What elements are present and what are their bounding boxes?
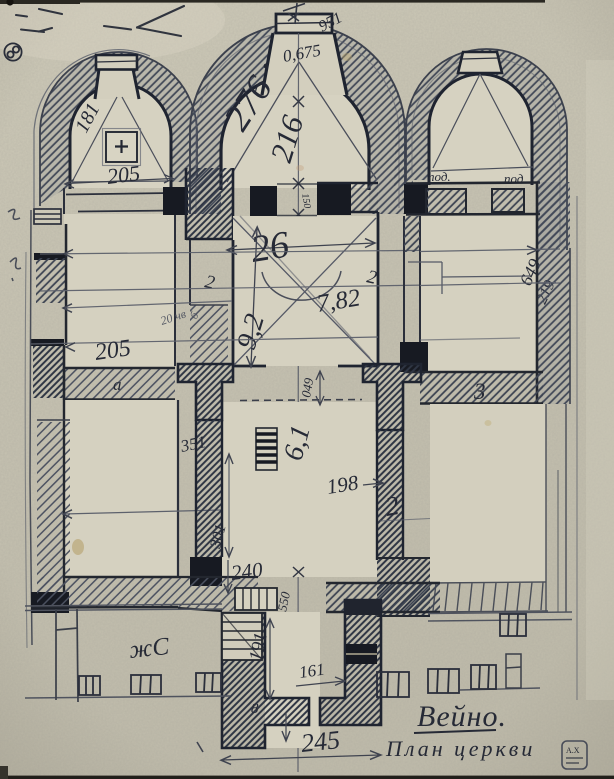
svg-text:Вейно.: Вейно.: [417, 700, 507, 733]
svg-text:205: 205: [93, 335, 132, 366]
svg-text:3: 3: [473, 379, 486, 404]
svg-text:205: 205: [106, 160, 142, 189]
svg-text:26: 26: [248, 223, 292, 270]
svg-text:8: 8: [251, 701, 259, 717]
svg-text:240: 240: [230, 557, 265, 585]
svg-text:a: a: [113, 375, 122, 394]
svg-text:под.: под.: [428, 169, 451, 184]
svg-text:245: 245: [300, 725, 342, 758]
svg-text:жС: жС: [128, 633, 171, 664]
svg-text:A.X: A.X: [566, 746, 580, 755]
svg-text:План церкви: План церкви: [385, 736, 535, 761]
svg-text:198: 198: [325, 470, 360, 499]
svg-text:161: 161: [298, 660, 326, 682]
